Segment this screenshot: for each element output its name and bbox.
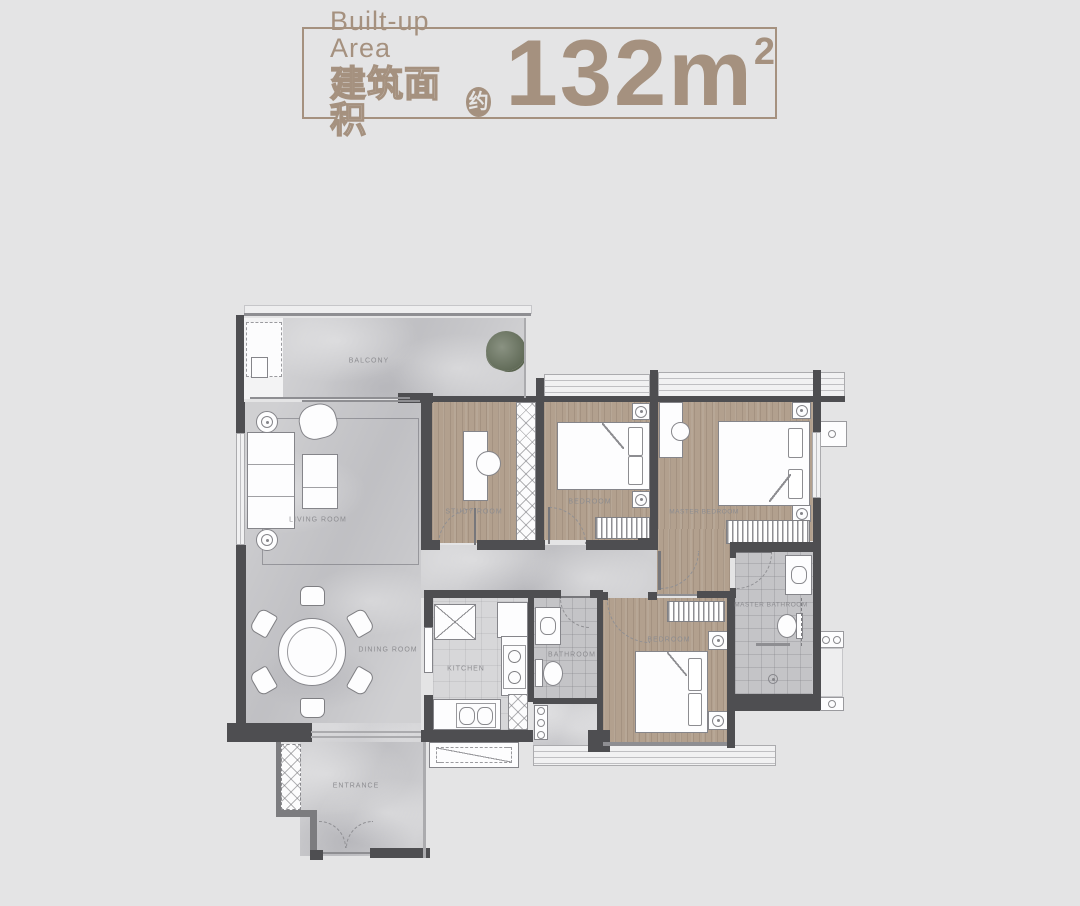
wall	[236, 315, 244, 402]
wall	[638, 538, 657, 550]
wall	[236, 603, 246, 723]
door-leaf	[548, 507, 550, 544]
pillow	[688, 658, 702, 691]
wall	[477, 540, 545, 550]
toilet-tank	[535, 659, 543, 687]
wall	[730, 552, 736, 558]
area-exponent: 2	[754, 38, 775, 68]
wall	[650, 370, 658, 550]
wall	[370, 848, 430, 858]
stove-cooktop	[503, 645, 526, 689]
balcony-sliding-door-track	[250, 397, 410, 399]
wall	[424, 598, 433, 627]
lamp-icon	[712, 635, 724, 647]
nightstand	[632, 491, 650, 508]
side-table-plant	[256, 529, 278, 551]
burner-icon	[508, 650, 521, 663]
desk-chair	[476, 451, 501, 476]
door-leaf	[658, 551, 661, 590]
lamp-icon	[796, 508, 808, 520]
blanket-fold	[602, 423, 624, 449]
wall	[424, 695, 433, 732]
wall	[586, 540, 639, 550]
pillow	[688, 693, 702, 726]
sink-basin	[459, 707, 475, 725]
sofa	[247, 432, 295, 529]
title-chinese: 建筑面积	[330, 66, 457, 138]
bedroom-bottom-bay-window	[533, 745, 776, 766]
knob-icon	[537, 731, 545, 739]
fridge	[434, 604, 476, 640]
floorplan-page: Built-up Area 建筑面积 约 132m 2	[0, 0, 1080, 906]
lamp-icon	[635, 494, 647, 506]
ac-outdoor-unit	[819, 697, 844, 711]
pillow	[628, 427, 643, 456]
wall	[310, 850, 323, 860]
title-english: Built-up Area	[330, 8, 491, 62]
approx-badge: 约	[466, 87, 492, 117]
wall	[227, 723, 312, 742]
master-bath-vanity	[785, 555, 812, 595]
sink-basin	[791, 566, 807, 584]
bedroom-bottom-sill	[603, 742, 727, 746]
bed	[557, 422, 650, 490]
pillow	[628, 456, 643, 485]
flue-shaft	[508, 694, 528, 730]
wall	[588, 730, 610, 752]
room-label-dining-room: DINING ROOM	[358, 647, 417, 654]
wall	[727, 598, 735, 748]
shoe-cabinet	[429, 742, 519, 768]
lamp-icon	[635, 406, 647, 418]
room-label-study-room: STUDY ROOM	[445, 509, 502, 516]
nightstand	[632, 403, 650, 420]
stool	[671, 422, 690, 441]
room-label-master-bedroom: MASTER BEDROOM	[669, 509, 738, 516]
toilet	[777, 614, 797, 638]
balcony-door	[251, 357, 268, 378]
blanket-fold	[769, 474, 791, 502]
utility-shaft	[281, 744, 301, 810]
kitchen-counter	[497, 602, 528, 638]
bed	[635, 651, 708, 733]
wall	[424, 590, 561, 598]
lamp-icon	[712, 715, 724, 727]
wall	[590, 590, 603, 598]
door-leaf	[560, 596, 590, 598]
room-label-bedroom-bottom: BEDROOM	[647, 637, 690, 644]
area-title-box: Built-up Area 建筑面积 约 132m 2	[302, 27, 777, 119]
wall	[813, 370, 821, 710]
entry-threshold	[323, 852, 370, 854]
balcony-sliding-door-track	[302, 400, 420, 402]
room-label-kitchen: KITCHEN	[447, 666, 485, 673]
sliding-door-leaf	[424, 627, 433, 673]
nightstand	[792, 402, 811, 419]
room-label-master-bathroom: MASTER BATHROOM	[734, 602, 807, 609]
title-left: Built-up Area 建筑面积 约	[330, 8, 491, 138]
bathroom-vanity	[535, 607, 561, 645]
floor-drain-icon	[768, 674, 778, 684]
master-bedroom-side-window	[812, 432, 821, 498]
passage-threshold	[657, 594, 697, 596]
nightstand	[708, 711, 728, 730]
blanket-fold	[667, 652, 687, 676]
room-label-entrance: ENTRANCE	[333, 783, 380, 790]
wall	[648, 592, 657, 600]
master-bed	[718, 421, 810, 506]
laundry-cabinet	[534, 705, 548, 740]
wall	[730, 542, 820, 552]
ac-outdoor-unit	[817, 421, 847, 447]
plant-icon	[261, 416, 273, 428]
room-label-bedroom-top: BEDROOM	[568, 499, 611, 506]
dresser	[595, 517, 650, 539]
dining-threshold-line	[311, 736, 421, 738]
living-room-window	[236, 433, 245, 545]
fan-icon	[833, 636, 841, 644]
knob-icon	[537, 719, 545, 727]
balcony-side-line	[524, 318, 526, 398]
toilet	[543, 661, 563, 686]
dining-chair	[300, 698, 325, 718]
window-sill-wall	[432, 396, 845, 402]
wall	[533, 698, 597, 704]
nightstand	[708, 631, 728, 650]
wall	[236, 545, 246, 603]
wall	[421, 398, 432, 550]
wall	[421, 540, 440, 550]
wall	[597, 598, 603, 750]
dresser	[726, 520, 810, 544]
wall	[528, 598, 534, 702]
room-label-bathroom: BATHROOM	[548, 652, 596, 659]
side-table-plant	[256, 411, 278, 433]
wall	[727, 694, 820, 711]
lamp-icon	[796, 405, 808, 417]
kitchen-sink	[456, 703, 496, 728]
room-label-balcony: BALCONY	[349, 358, 389, 365]
knob-icon	[537, 707, 545, 715]
wardrobe-cabinet	[516, 402, 536, 543]
burner-icon	[508, 671, 521, 684]
wall	[236, 402, 245, 433]
entrance-side-line	[423, 742, 426, 858]
sink-basin	[477, 707, 493, 725]
shower-sill	[756, 643, 790, 646]
dining-chair	[300, 586, 325, 606]
wall	[421, 730, 533, 742]
wall	[310, 815, 317, 855]
room-label-living-room: LIVING ROOM	[289, 517, 347, 524]
wall	[536, 378, 544, 542]
wall	[603, 592, 608, 600]
tree-plant	[486, 331, 526, 371]
pillow	[788, 428, 803, 458]
dresser	[667, 601, 725, 622]
fan-icon	[828, 700, 836, 708]
dining-threshold-line	[311, 731, 421, 733]
fan-icon	[828, 430, 836, 438]
coffee-table	[302, 454, 338, 509]
bedroom-top-bay-window	[544, 374, 650, 397]
fan-icon	[822, 636, 830, 644]
cabinet-detail	[436, 747, 512, 763]
sink-basin	[540, 617, 556, 635]
plant-icon	[261, 534, 273, 546]
area-number: 132m	[505, 36, 753, 109]
wall	[730, 588, 736, 598]
balcony-railing	[244, 313, 531, 316]
ac-outdoor-unit	[819, 631, 844, 648]
area-value: 132m 2	[505, 36, 775, 109]
wall	[697, 591, 730, 598]
dining-table-inner	[287, 627, 337, 677]
wall	[276, 742, 281, 813]
